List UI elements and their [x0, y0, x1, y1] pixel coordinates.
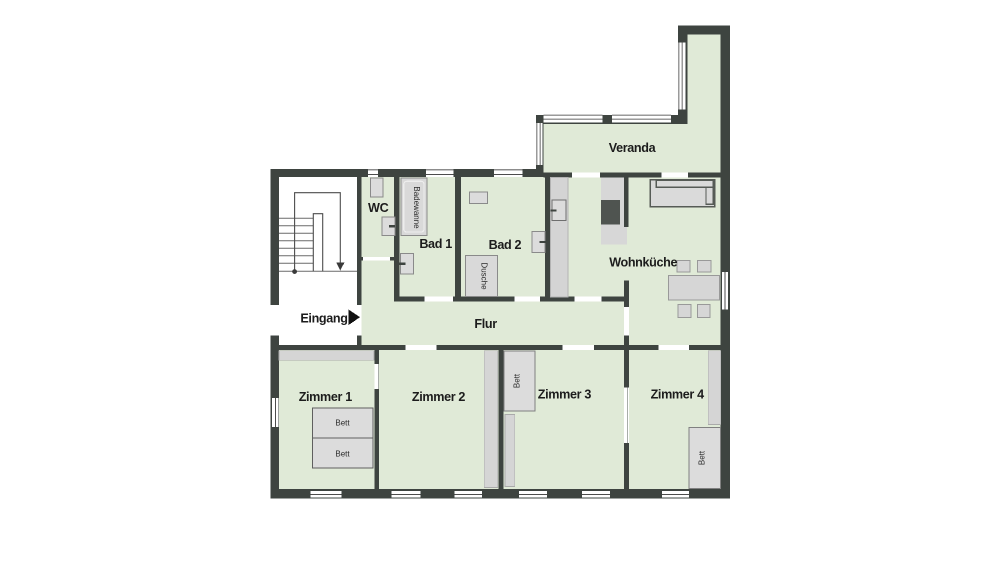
svg-text:Zimmer 1: Zimmer 1 — [299, 390, 353, 404]
svg-text:Badewanne: Badewanne — [412, 186, 421, 229]
svg-text:Bett: Bett — [335, 450, 350, 459]
svg-text:Bett: Bett — [698, 450, 707, 465]
svg-text:Bad 2: Bad 2 — [489, 238, 522, 252]
svg-text:Bad 1: Bad 1 — [419, 237, 452, 251]
svg-text:Flur: Flur — [474, 317, 497, 331]
svg-text:Zimmer 3: Zimmer 3 — [538, 387, 592, 401]
svg-text:Wohnküche: Wohnküche — [609, 256, 677, 270]
svg-text:Bett: Bett — [335, 419, 350, 428]
svg-text:Bett: Bett — [512, 373, 521, 388]
svg-text:Zimmer 2: Zimmer 2 — [412, 390, 466, 404]
svg-text:Dusche: Dusche — [480, 262, 489, 290]
svg-text:Eingang: Eingang — [300, 312, 347, 326]
svg-text:WC: WC — [368, 201, 389, 215]
svg-text:Zimmer 4: Zimmer 4 — [651, 387, 705, 401]
svg-text:Veranda: Veranda — [609, 141, 657, 155]
